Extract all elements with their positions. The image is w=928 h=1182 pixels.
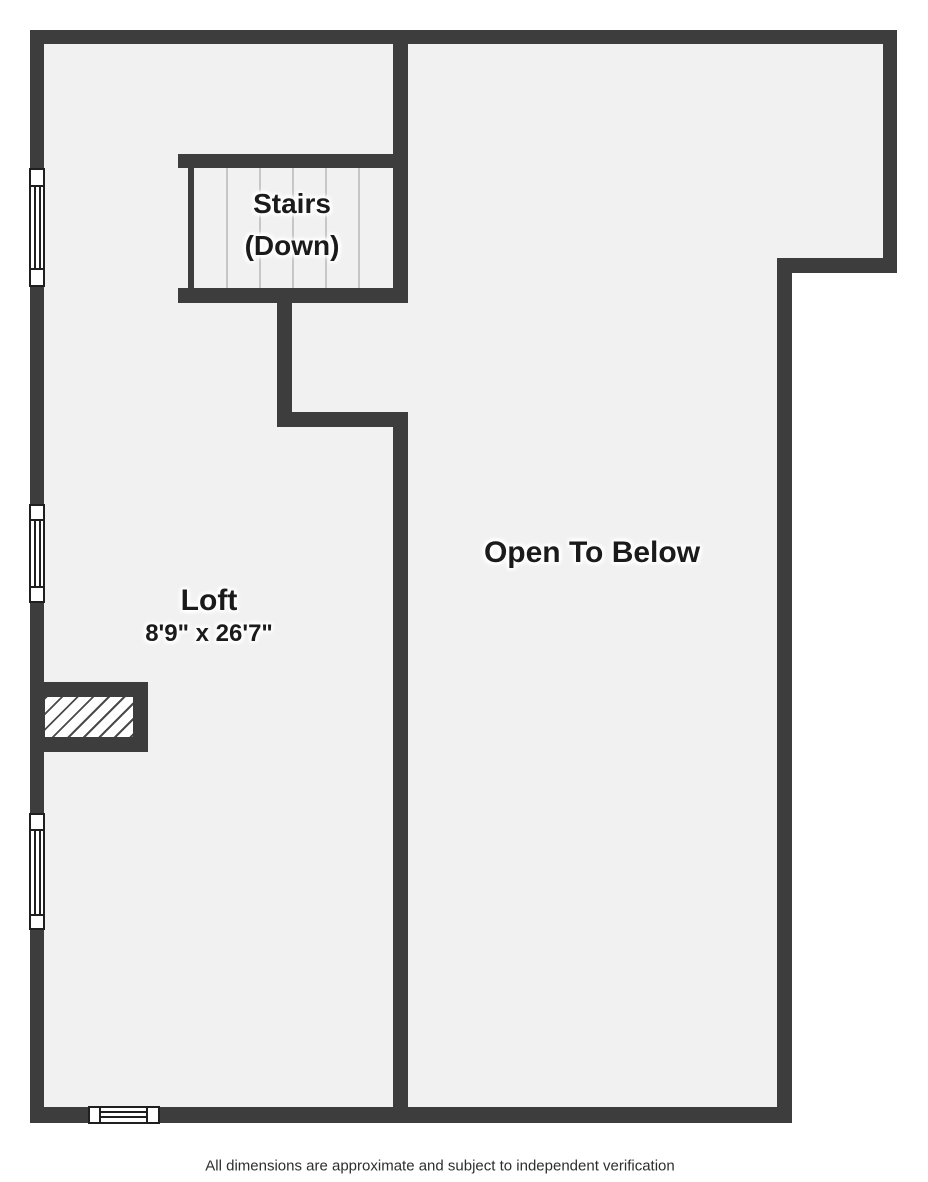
wall-step [777,258,897,273]
floor-slab-center [393,30,792,1123]
stair-tread-line [226,168,228,288]
window-glass-line [101,1111,146,1113]
window-sill-line [31,829,43,831]
window-glass-line [34,831,36,914]
stair-tread-line [358,168,360,288]
window-sill-line [31,185,43,187]
chimney-icon [32,682,148,752]
open-to-below-label: Open To Below [484,536,700,570]
window-glass-line [34,187,36,268]
window-glass-line [34,521,36,586]
window-sill-line [31,519,43,521]
wall-stairs-top [178,154,408,168]
stairs-label-line1: Stairs [245,183,340,225]
wall-right-lower [777,258,792,1123]
window-sill-line [31,268,43,270]
wall-stairs-bottom [178,288,408,303]
disclaimer-text: All dimensions are approximate and subje… [205,1158,674,1175]
window-glass-line [39,831,41,914]
stairs-label-line2: (Down) [245,225,340,267]
loft-label-name: Loft [145,582,273,620]
wall-notch-bottom [277,412,408,427]
wall-top [30,30,897,44]
window-icon [29,813,45,930]
window-icon [29,168,45,287]
loft-label: Loft 8'9" x 26'7" [145,582,273,648]
window-glass-line [39,521,41,586]
floor-plan: Stairs (Down) Loft 8'9" x 26'7" Open To … [0,0,928,1182]
window-sill-line [146,1108,148,1122]
window-icon [88,1106,160,1124]
window-sill-line [31,914,43,916]
wall-right-upper [883,30,897,273]
window-glass-line [39,187,41,268]
stairs-label: Stairs (Down) [245,183,340,267]
window-glass-line [101,1116,146,1118]
window-sill-line [31,586,43,588]
chimney-hatch-fill [45,697,133,737]
window-icon [29,504,45,603]
wall-divider-lower [393,412,408,1123]
wall-notch-left [277,288,292,427]
loft-label-dimensions: 8'9" x 26'7" [145,619,273,648]
floor-slab-top-right [777,30,897,273]
